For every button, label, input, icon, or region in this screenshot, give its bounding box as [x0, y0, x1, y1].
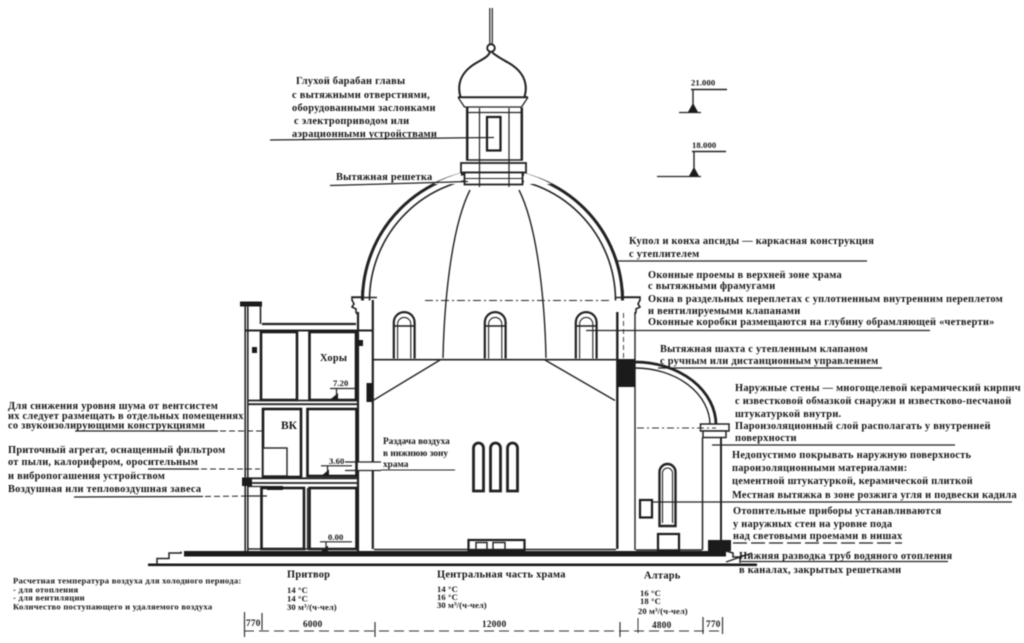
svg-text:с утеплителем: с утеплителем: [629, 249, 699, 260]
svg-text:Наружные стены — многощелевой: Наружные стены — многощелевой керамическ…: [735, 383, 1021, 394]
svg-text:6000: 6000: [303, 619, 323, 629]
svg-text:Нижняя разводка труб водяного: Нижняя разводка труб водяного отопления: [739, 551, 952, 562]
svg-text:штукатуркой внутри.: штукатуркой внутри.: [735, 409, 842, 420]
svg-text:в нижнюю зону: в нижнюю зону: [383, 449, 448, 459]
svg-text:7.20: 7.20: [333, 378, 348, 388]
svg-text:12000: 12000: [482, 619, 507, 629]
svg-text:у наружных стен на уровне пода: у наружных стен на уровне пода: [733, 519, 893, 530]
svg-text:и вибропогашения устройством: и вибропогашения устройством: [8, 471, 165, 482]
svg-text:Недопустимо покрывать наружную: Недопустимо покрывать наружную поверхнос…: [732, 450, 972, 461]
svg-text:Центральная часть храма: Центральная часть храма: [437, 570, 566, 581]
svg-text:20 м³/(ч-чел): 20 м³/(ч-чел): [638, 606, 688, 616]
svg-text:18.000: 18.000: [692, 140, 716, 150]
svg-text:аэрационными устройствами: аэрационными устройствами: [292, 129, 437, 140]
svg-text:Пароизоляционный слой располаг: Пароизоляционный слой располагать у внут…: [735, 421, 991, 432]
svg-text:с электроприводом или: с электроприводом или: [294, 116, 409, 127]
svg-text:30 м³/(ч-чел): 30 м³/(ч-чел): [437, 600, 487, 610]
svg-text:Алтарь: Алтарь: [644, 571, 681, 582]
svg-text:770: 770: [246, 618, 261, 628]
svg-text:Приточный агрегат, оснащенный: Приточный агрегат, оснащенный фильтром: [8, 445, 225, 456]
svg-text:храма: храма: [383, 460, 409, 470]
svg-text:Вытяжная шахта с утепленным кл: Вытяжная шахта с утепленным клапаном: [660, 344, 868, 355]
svg-text:Глухой барабан главы: Глухой барабан главы: [296, 76, 405, 87]
svg-text:с ручным или дистанционным упр: с ручным или дистанционным управлением: [660, 356, 879, 367]
svg-text:3.60: 3.60: [329, 456, 344, 466]
svg-text:цементной штукатуркой, керамич: цементной штукатуркой, керамической плит…: [732, 476, 973, 487]
svg-text:от пыли, калорифером, оросител: от пыли, калорифером, оросительным: [8, 457, 198, 468]
svg-text:со звукоизолирующими конструкц: со звукоизолирующими конструкциями: [8, 421, 205, 432]
svg-text:Купол и конха апсиды — каркасн: Купол и конха апсиды — каркасная констру…: [629, 236, 874, 247]
svg-text:30 м³/(ч-чел): 30 м³/(ч-чел): [287, 602, 337, 612]
svg-text:Местная вытяжка в зоне розжига: Местная вытяжка в зоне розжига угля и по…: [732, 490, 1017, 501]
svg-text:поверхности: поверхности: [735, 433, 797, 444]
svg-text:Окна в раздельных переплетах с: Окна в раздельных переплетах с уплотненн…: [648, 294, 1003, 305]
svg-text:Хоры: Хоры: [320, 353, 347, 364]
svg-text:Вытяжная решетка: Вытяжная решетка: [336, 172, 433, 183]
svg-text:в каналах, закрытых решетками: в каналах, закрытых решетками: [739, 565, 901, 576]
svg-text:4800: 4800: [652, 620, 672, 630]
svg-text:оборудованными заслонками: оборудованными заслонками: [292, 103, 436, 114]
svg-text:Оконные коробки размещаются на: Оконные коробки размещаются на глубину о…: [648, 317, 995, 328]
svg-text:ВК: ВК: [281, 420, 298, 432]
svg-text:18 °С: 18 °С: [640, 596, 661, 606]
svg-text:770: 770: [706, 619, 721, 629]
svg-text:пароизоляционными материалами:: пароизоляционными материалами:: [732, 463, 907, 474]
svg-text:21.000: 21.000: [691, 78, 715, 88]
svg-text:над световыми проемами в нишах: над световыми проемами в нишах: [733, 531, 903, 542]
svg-text:с вытяжными фрамугами: с вытяжными фрамугами: [648, 281, 775, 292]
svg-text:с вытяжными отверстиями,: с вытяжными отверстиями,: [292, 90, 430, 101]
svg-text:с известковой обмазкой снаружи: с известковой обмазкой снаружи и известк…: [735, 396, 1012, 407]
svg-text:0.00: 0.00: [328, 532, 343, 542]
svg-text:Количество поступающего и удал: Количество поступающего и удаляемого воз…: [13, 602, 213, 612]
svg-text:и вентилируемыми клапанами: и вентилируемыми клапанами: [648, 306, 801, 317]
svg-text:Отопительные приборы устанавли: Отопительные приборы устанавливаются: [733, 506, 942, 517]
svg-text:Оконные проемы в верхней зоне: Оконные проемы в верхней зоне храма: [648, 270, 843, 281]
svg-text:Раздача воздуха: Раздача воздуха: [383, 437, 450, 447]
svg-text:Воздушная или тепловоздушная з: Воздушная или тепловоздушная завеса: [8, 484, 202, 495]
svg-text:Притвор: Притвор: [287, 570, 330, 581]
